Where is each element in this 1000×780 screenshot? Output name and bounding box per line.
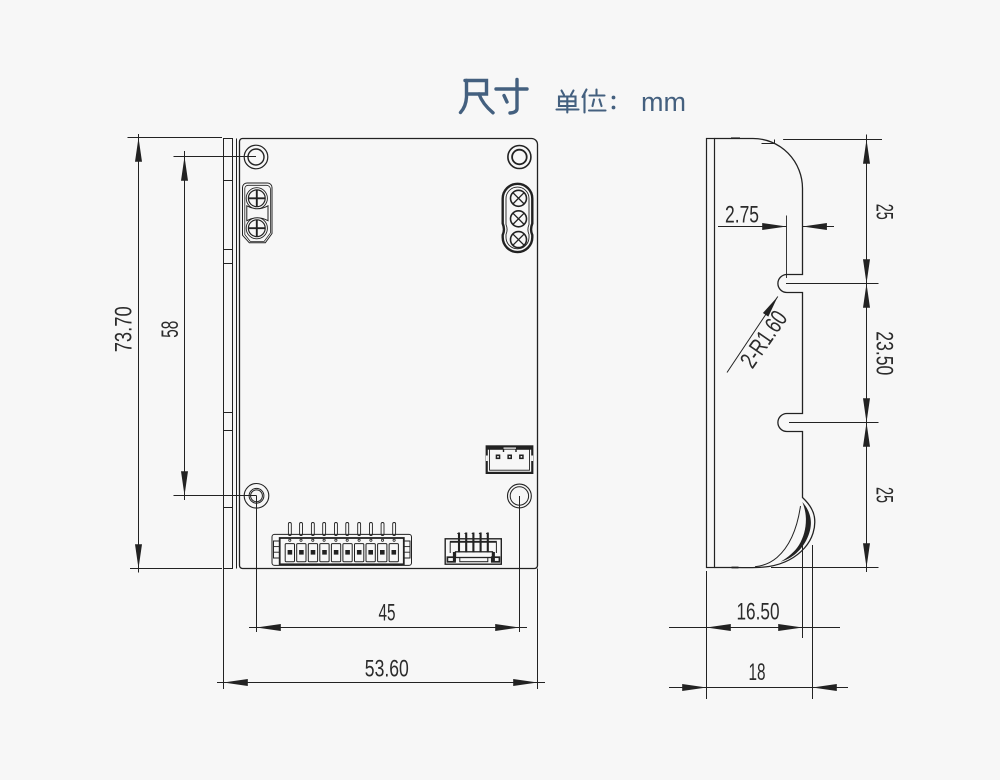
svg-text:2.75: 2.75: [725, 202, 759, 229]
svg-text:18: 18: [749, 659, 766, 686]
svg-text:58: 58: [157, 321, 184, 338]
svg-text:2-R1.60: 2-R1.60: [735, 306, 793, 373]
svg-text:53.60: 53.60: [365, 656, 409, 683]
svg-text:16.50: 16.50: [737, 599, 780, 626]
svg-text:73.70: 73.70: [111, 306, 138, 352]
svg-text:25: 25: [871, 204, 898, 220]
svg-text:45: 45: [379, 600, 396, 627]
svg-text:25: 25: [871, 487, 898, 503]
svg-text:23.50: 23.50: [871, 331, 898, 375]
